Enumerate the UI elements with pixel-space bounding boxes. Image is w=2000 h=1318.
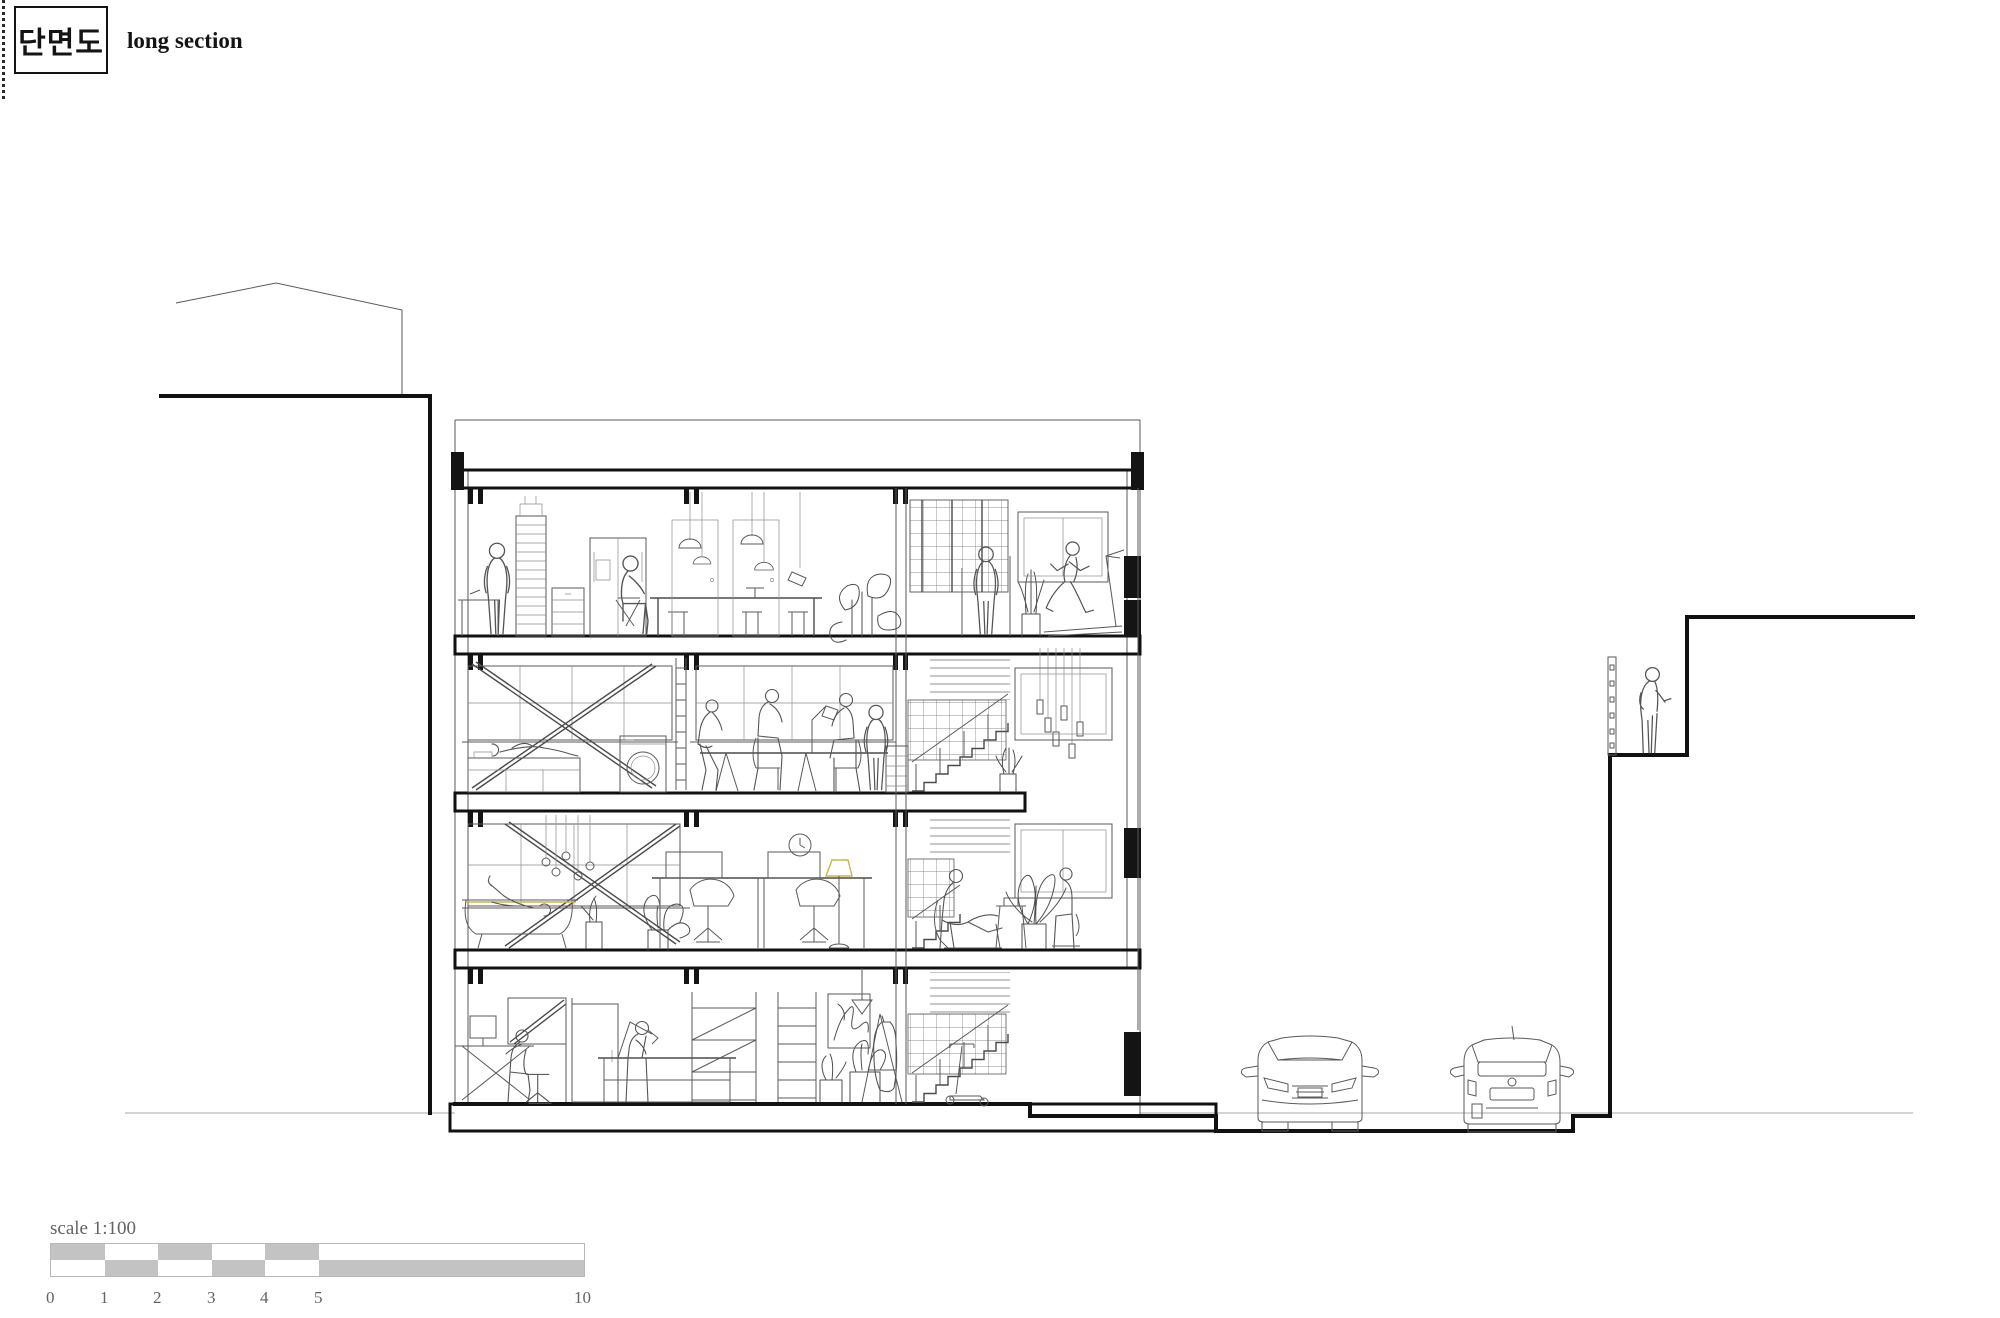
- floor-1-studio: [455, 968, 902, 1103]
- sliding-door: [566, 998, 618, 1102]
- floor-plant-2f: [644, 895, 690, 950]
- person-desk-mid: [626, 1022, 649, 1103]
- plants-1f: [820, 1041, 886, 1103]
- wall-ladder: [676, 658, 686, 790]
- car-front-view: [1242, 1036, 1379, 1131]
- person-standing-4f: [485, 543, 510, 633]
- building-shell: [450, 420, 1216, 1131]
- neighbor-building: [161, 283, 430, 1113]
- scale-tick-2: 2: [153, 1288, 162, 1308]
- plant-4f: [830, 574, 901, 642]
- slab-3f-cantilever: [455, 793, 1025, 811]
- pendant-1f: [852, 968, 872, 1014]
- scale-seg: [265, 1260, 319, 1276]
- scale-tick-4: 4: [260, 1288, 269, 1308]
- windows-3f: [462, 666, 896, 742]
- side-cabinet-3f: [886, 746, 908, 792]
- scale-bar: [50, 1243, 585, 1277]
- treadmill: [1044, 550, 1124, 636]
- scale-seg: [319, 1244, 585, 1260]
- scale-label: scale 1:100: [50, 1218, 136, 1240]
- ground-floor-line: [455, 1104, 1146, 1116]
- stools: [668, 612, 808, 636]
- scale-seg: [105, 1260, 159, 1276]
- scale-seg: [319, 1260, 585, 1276]
- x-brace-2f: [505, 822, 680, 948]
- neighbor-roofline: [176, 283, 402, 396]
- scale-tick-10: 10: [574, 1288, 591, 1308]
- meeting-group: [698, 690, 908, 793]
- dining-table: [650, 598, 822, 636]
- terrace-retaining-walls: [1146, 617, 1913, 1131]
- scale-seg: [158, 1244, 212, 1260]
- stairwell: [908, 648, 1112, 1106]
- person-meeting-standing: [864, 705, 887, 789]
- floor-4-kitchen-dining: [458, 492, 901, 642]
- slab-4f: [455, 636, 1140, 654]
- scaffold-shelf: [692, 992, 756, 1102]
- tub-plant: [581, 896, 602, 948]
- window-1f: [508, 998, 566, 1044]
- scale-tick-3: 3: [207, 1288, 216, 1308]
- door-openings: [672, 520, 779, 636]
- floor-4-gym: [910, 500, 1124, 636]
- washer: [620, 736, 666, 792]
- wall-art: [828, 994, 870, 1048]
- scale-seg: [265, 1244, 319, 1260]
- car-rear-view: [1450, 1026, 1573, 1132]
- person-sitting-2f-right: [1052, 868, 1080, 948]
- monitor-right: [768, 852, 820, 878]
- scale-seg: [158, 1260, 212, 1276]
- pendant-cluster-stair: [1037, 648, 1083, 758]
- person-meeting-1: [698, 700, 722, 790]
- column-cut-marks: [468, 488, 908, 984]
- scale-tick-1: 1: [100, 1288, 109, 1308]
- person-sitting-4f: [616, 556, 648, 634]
- scale-tick-5: 5: [314, 1288, 323, 1308]
- person-on-treadmill: [1046, 542, 1093, 612]
- person-meeting-3: [830, 694, 861, 793]
- person-on-terrace: [1608, 657, 1671, 755]
- floor-3-bedroom: [462, 658, 908, 792]
- scale-seg: [51, 1260, 105, 1276]
- stair-mesh-4f: [910, 500, 1008, 592]
- x-brace-3f: [472, 662, 656, 790]
- gym-plant: [1018, 570, 1044, 636]
- floor-2-workspace: [462, 815, 872, 950]
- window-3f-stair: [1015, 668, 1112, 740]
- window-2f-stair: [1015, 824, 1112, 898]
- wall-clock: [789, 834, 811, 856]
- office-chair-left: [690, 879, 734, 942]
- drawing-sheet: 단면도 long section: [0, 0, 2000, 1318]
- scale-seg: [212, 1244, 266, 1260]
- work-desk-mid: [598, 1022, 736, 1102]
- hanging-bulbs: [542, 815, 594, 880]
- scale-seg: [105, 1244, 159, 1260]
- office-chair-right: [796, 879, 840, 942]
- scale-seg: [51, 1244, 105, 1260]
- pendant-lamps-4f: [679, 492, 806, 598]
- person-desk-left: [506, 1030, 552, 1103]
- scale-tick-0: 0: [46, 1288, 55, 1308]
- ladder-shelf: [778, 992, 816, 1102]
- slab-2f: [455, 950, 1140, 968]
- corner-desk: [455, 1016, 534, 1100]
- scale-seg: [212, 1260, 266, 1276]
- floor-lamp: [826, 860, 852, 948]
- section-drawing: [0, 0, 2000, 1318]
- table-lamp-3f: [812, 706, 838, 753]
